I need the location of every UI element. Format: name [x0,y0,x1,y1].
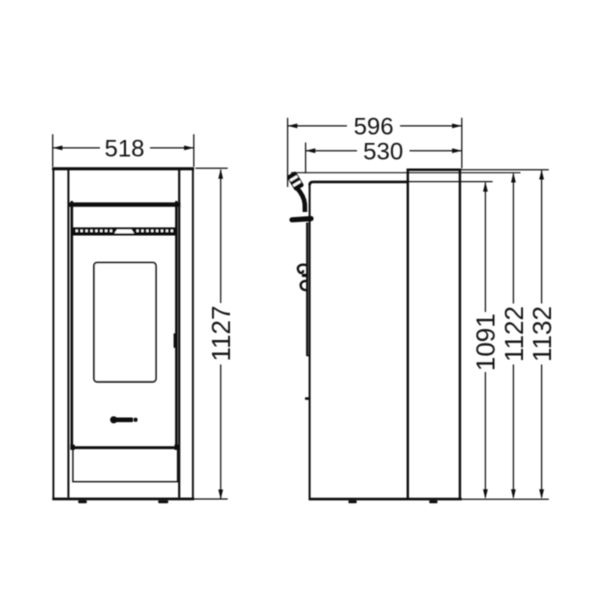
svg-text:1132: 1132 [527,306,557,362]
svg-text:1127: 1127 [206,306,236,362]
svg-text:518: 518 [104,136,144,163]
svg-text:1122: 1122 [499,306,529,362]
svg-text:1091: 1091 [470,313,500,371]
svg-text:596: 596 [354,114,394,141]
svg-text:530: 530 [363,138,403,165]
